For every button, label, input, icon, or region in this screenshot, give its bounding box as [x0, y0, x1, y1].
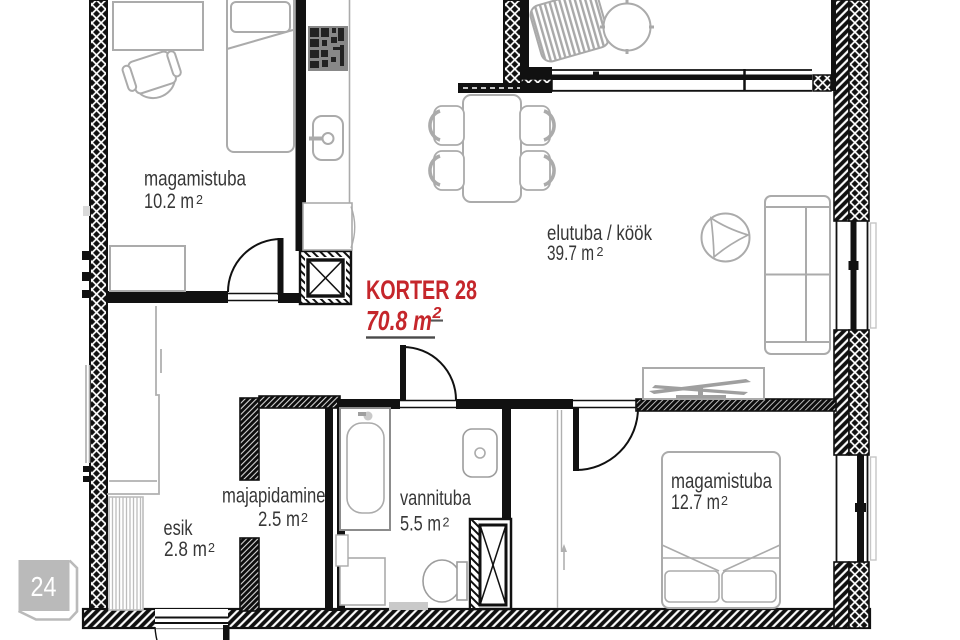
svg-text:12.7 m: 12.7 m	[671, 491, 720, 514]
svg-text:2: 2	[597, 245, 604, 259]
svg-text:2: 2	[432, 305, 442, 322]
svg-text:KORTER 28: KORTER 28	[366, 275, 477, 305]
svg-text:10.2 m: 10.2 m	[144, 190, 194, 213]
svg-text:magamistuba: magamistuba	[671, 470, 772, 493]
svg-text:magamistuba: magamistuba	[144, 168, 246, 191]
svg-text:5.5 m: 5.5 m	[400, 513, 441, 536]
svg-text:2: 2	[721, 494, 728, 508]
svg-text:70.8 m: 70.8 m	[366, 305, 432, 336]
svg-text:39.7 m: 39.7 m	[547, 242, 594, 265]
svg-text:2: 2	[208, 541, 215, 555]
svg-text:24: 24	[31, 571, 57, 602]
svg-text:2: 2	[196, 193, 203, 207]
svg-text:2.8 m: 2.8 m	[164, 538, 207, 561]
svg-text:2.5 m: 2.5 m	[258, 508, 300, 531]
svg-text:esik: esik	[164, 517, 193, 540]
svg-text:2: 2	[443, 516, 450, 530]
svg-text:vannituba: vannituba	[400, 487, 471, 510]
svg-text:2: 2	[301, 511, 308, 525]
svg-text:majapidamine: majapidamine	[222, 485, 326, 508]
